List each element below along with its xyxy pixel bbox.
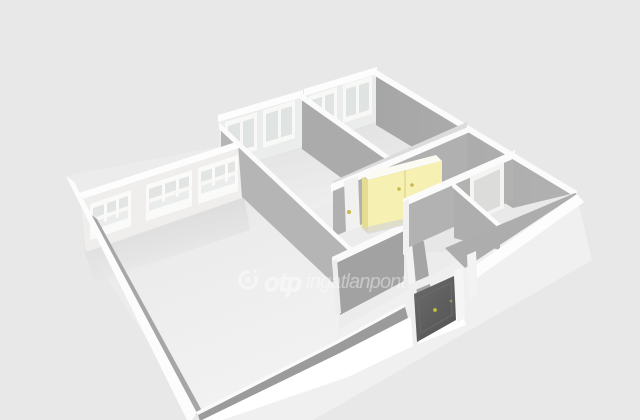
svg-text:ingatlanpont: ingatlanpont [306,271,408,293]
svg-text:otp: otp [264,267,302,297]
